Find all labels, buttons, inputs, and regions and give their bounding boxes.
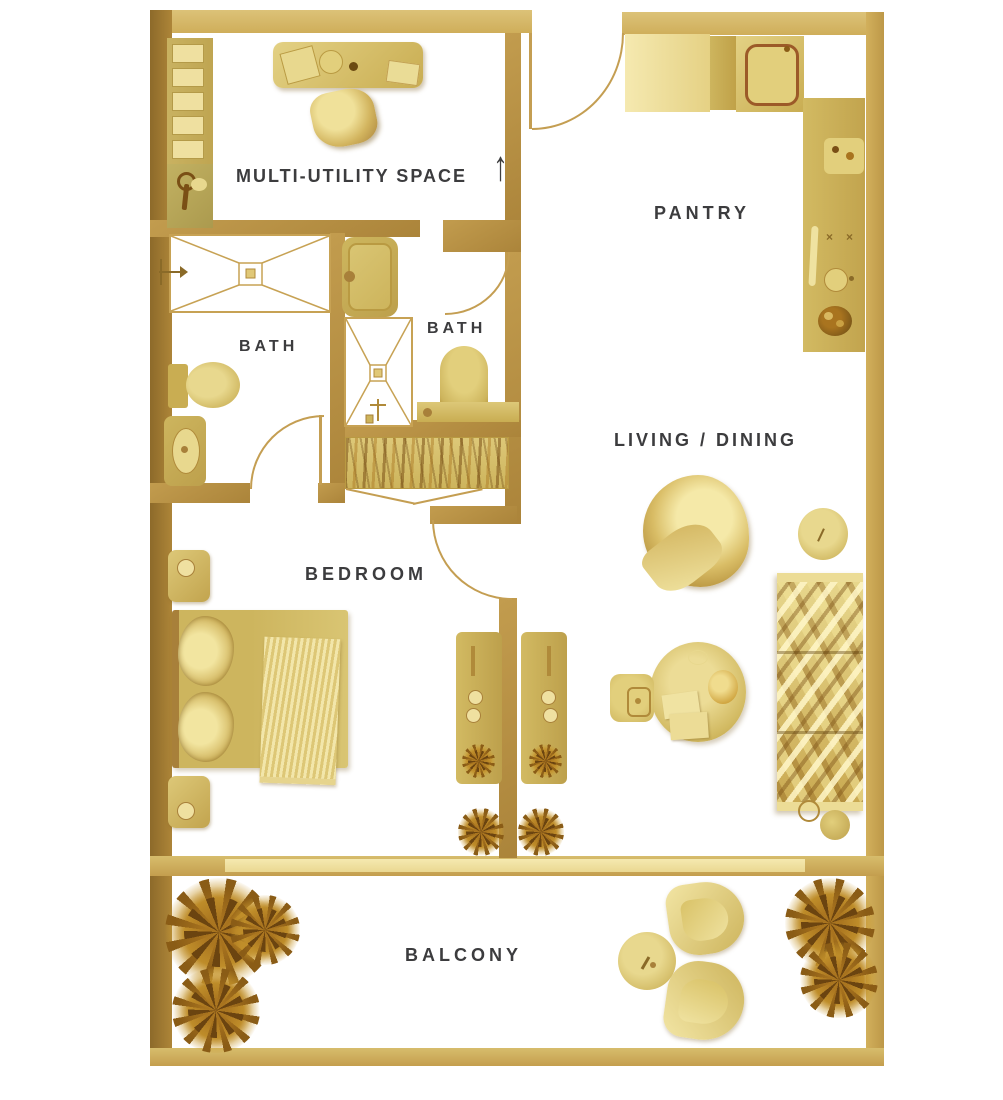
sink-basin-icon — [745, 44, 799, 106]
wall-bath-left-bottom-a — [150, 483, 250, 503]
room-label-living-dining: LIVING / DINING — [614, 430, 797, 451]
burner-knob-icon: × — [846, 231, 853, 243]
kitchen-counter-top — [710, 36, 736, 110]
tv-unit — [521, 632, 567, 784]
wall-top-left — [150, 10, 532, 33]
bath-left-door-arc — [250, 415, 324, 489]
bread-basket-icon — [708, 670, 738, 704]
pillow — [178, 616, 234, 686]
room-label-pantry: PANTRY — [654, 203, 750, 224]
dining-table — [650, 642, 746, 742]
bathtub — [342, 237, 398, 317]
shower-head-icon — [155, 253, 191, 291]
kitchen-sink-unit — [736, 36, 804, 112]
laptop-icon — [279, 45, 320, 85]
plant-icon — [800, 942, 878, 1018]
vanity-sink-left — [164, 416, 206, 486]
plant-icon — [172, 968, 260, 1053]
side-table — [798, 508, 848, 560]
armchair — [643, 475, 749, 587]
shower-right — [344, 317, 413, 427]
utility-wardrobe — [167, 38, 213, 164]
plant-icon — [458, 808, 504, 856]
cooking-pot-icon — [824, 268, 848, 292]
small-appliance-icon — [824, 138, 864, 174]
plant-icon — [462, 744, 495, 778]
kitchen-counter-right: × × — [803, 98, 865, 352]
fridge — [625, 34, 710, 112]
balcony-table — [618, 932, 676, 990]
room-label-bath-right: BATH — [427, 320, 486, 338]
closet-door-line — [413, 488, 483, 505]
bath-left-door-leaf — [319, 415, 322, 485]
wall-multiutility-right — [505, 33, 521, 233]
plant-icon — [518, 808, 564, 856]
floor-lamp-icon — [798, 800, 820, 822]
entry-arrow-icon: ↑ — [493, 145, 508, 187]
tub-faucet-icon — [344, 271, 355, 282]
room-label-multi-utility: MULTI-UTILITY SPACE — [236, 166, 467, 187]
tv-unit — [456, 632, 502, 784]
plant-icon — [529, 744, 562, 778]
burner-knob-icon: × — [826, 231, 833, 243]
nightstand — [168, 776, 210, 828]
desk-chair — [307, 84, 381, 152]
plate-icon — [319, 50, 343, 74]
plant-icon — [230, 895, 300, 965]
dining-chair — [610, 674, 654, 722]
room-label-bedroom: BEDROOM — [305, 564, 427, 585]
closet-door-line — [346, 488, 416, 505]
bed — [172, 610, 348, 768]
room-label-bath-left: BATH — [239, 338, 298, 356]
toilet-left — [168, 362, 242, 410]
floor-plan: MULTI-UTILITY SPACE ↑ × × PANTRY — [0, 0, 1003, 1100]
shower-left — [169, 234, 331, 313]
nightstand — [168, 550, 210, 602]
pillow — [178, 692, 234, 762]
entry-door-arc — [532, 33, 624, 130]
wardrobe-closet — [345, 437, 509, 489]
blanket — [259, 637, 340, 786]
room-label-balcony: BALCONY — [405, 945, 522, 966]
stool — [820, 810, 850, 840]
frying-pan-icon — [818, 306, 852, 336]
cutting-board-icon — [808, 226, 818, 286]
balcony-chair — [663, 877, 748, 959]
napkin-icon — [669, 712, 709, 741]
entry-door-leaf — [529, 33, 532, 129]
wall-bottom — [150, 1048, 884, 1066]
window-sliding-door — [225, 859, 805, 872]
bedroom-door-arc — [432, 520, 512, 600]
toilet-right — [440, 346, 488, 410]
dish-icon — [688, 650, 708, 665]
wall-top-right — [622, 12, 884, 35]
bath-right-door-arc — [445, 252, 510, 315]
bathroom-counter — [417, 402, 519, 422]
notepad-icon — [386, 60, 421, 86]
wall-bath-right-top — [443, 220, 521, 252]
utility-cabinet — [167, 164, 213, 228]
desk — [273, 42, 423, 88]
sofa — [777, 573, 863, 811]
